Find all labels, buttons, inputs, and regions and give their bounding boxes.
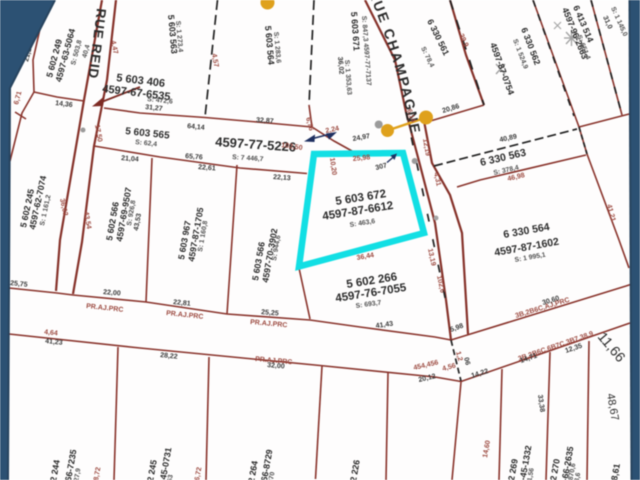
svg-text:22,13: 22,13	[273, 174, 291, 182]
svg-text:32,87: 32,87	[256, 117, 274, 125]
svg-text:73,6: 73,6	[573, 472, 582, 480]
svg-text:4,64: 4,64	[44, 329, 58, 337]
